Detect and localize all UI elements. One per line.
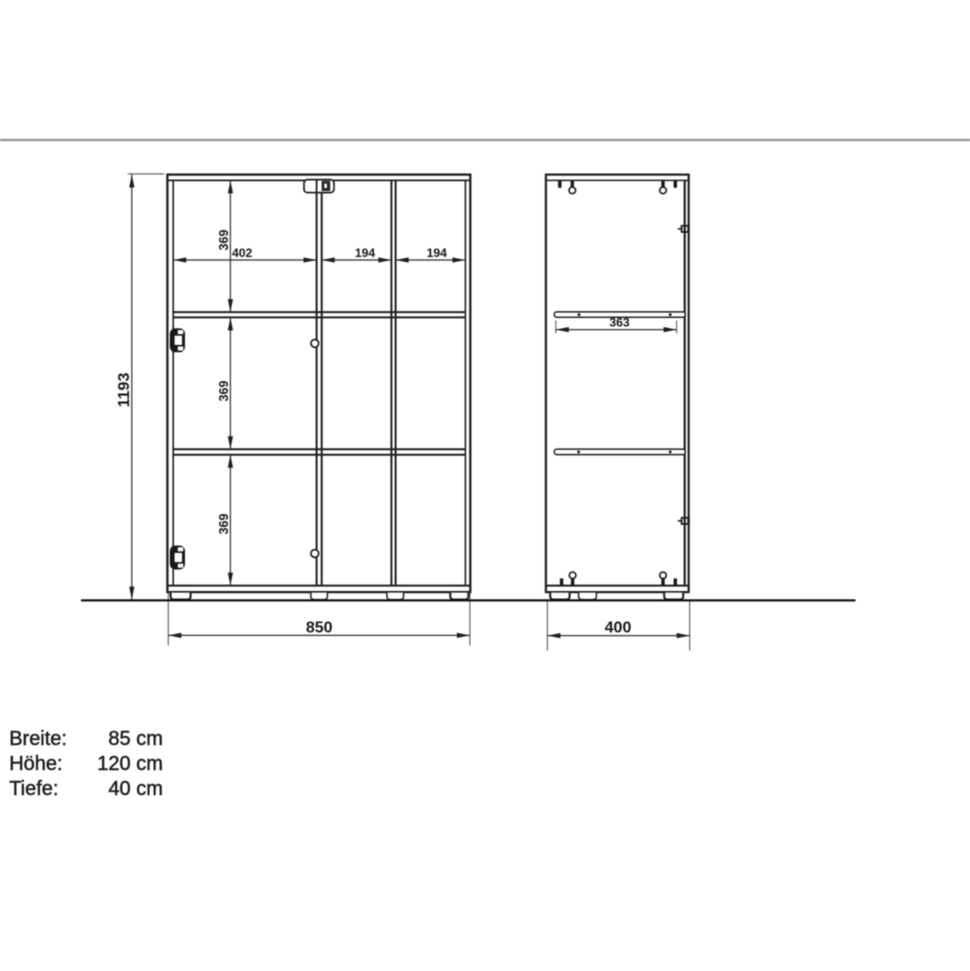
- svg-text:400: 400: [605, 620, 632, 637]
- svg-text:Höhe:: Höhe:: [9, 753, 62, 775]
- svg-text:cm: cm: [136, 728, 163, 750]
- svg-text:363: 363: [609, 316, 630, 330]
- svg-text:120: 120: [97, 753, 130, 775]
- svg-text:194: 194: [355, 246, 376, 260]
- svg-text:40: 40: [108, 778, 130, 800]
- svg-text:cm: cm: [136, 778, 163, 800]
- svg-text:85: 85: [108, 728, 130, 750]
- svg-text:cm: cm: [136, 753, 163, 775]
- svg-text:369: 369: [217, 380, 231, 401]
- svg-text:402: 402: [232, 246, 253, 260]
- svg-text:Tiefe:: Tiefe:: [9, 778, 58, 800]
- svg-text:1193: 1193: [116, 373, 133, 408]
- svg-text:369: 369: [217, 229, 231, 250]
- svg-text:194: 194: [427, 246, 448, 260]
- svg-text:Breite:: Breite:: [9, 728, 67, 750]
- svg-text:369: 369: [217, 513, 231, 534]
- svg-text:850: 850: [306, 619, 333, 636]
